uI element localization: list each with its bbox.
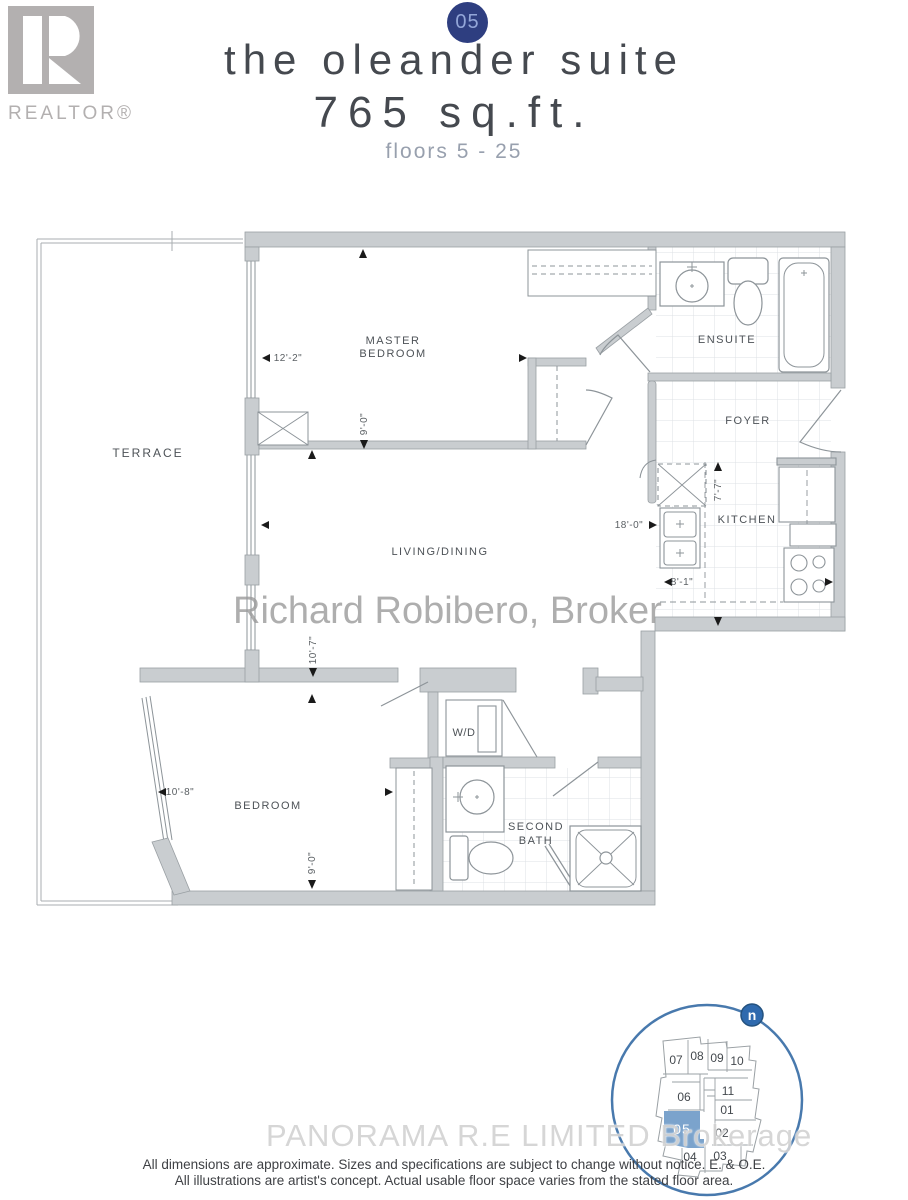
floorplan-page: REALTOR® 05 the oleander suite 765 sq.ft…	[0, 0, 908, 1200]
burner	[813, 580, 825, 592]
stove	[784, 548, 834, 602]
keyplan-unit-09: 09	[710, 1051, 724, 1065]
windows	[142, 261, 255, 842]
label-living: LIVING/DINING	[391, 546, 488, 558]
disclaimer-line-1: All dimensions are approximate. Sizes an…	[0, 1157, 908, 1173]
dim-bedroom-depth: 9'-0"	[307, 852, 318, 874]
keyplan-unit-10: 10	[730, 1054, 744, 1068]
brokerage-watermark: PANORAMA R.E LIMITED Brokerage	[266, 1118, 812, 1154]
bath-toilet-tank	[450, 836, 468, 880]
label-bath-2: BATH	[519, 835, 554, 847]
dim-master-depth: 9'-0"	[359, 413, 370, 435]
broker-watermark: Richard Robibero, Broker	[233, 590, 662, 633]
kitchen-counter	[790, 524, 836, 546]
kitchen-counter-edge	[777, 458, 836, 465]
dim-living-depth: 10'-7"	[308, 636, 319, 664]
label-foyer: FOYER	[725, 415, 770, 427]
bath-toilet-bowl	[469, 842, 513, 874]
shower-drain	[600, 852, 612, 864]
keyplan-unit-11: 11	[722, 1084, 735, 1098]
label-terrace: TERRACE	[112, 446, 183, 460]
dim-living-width: 18'-0"	[615, 520, 643, 531]
burner	[813, 556, 825, 568]
wd-door	[503, 700, 537, 757]
label-master-2: BEDROOM	[359, 348, 426, 360]
dim-bedroom-width: 10'-8"	[166, 787, 194, 798]
terrace-railing	[37, 231, 243, 905]
keyplan-unit-08: 08	[690, 1049, 704, 1063]
burner	[791, 555, 807, 571]
north-indicator-label: n	[748, 1007, 757, 1023]
label-bath-1: SECOND	[508, 821, 564, 833]
keyplan-unit-06: 06	[677, 1090, 691, 1104]
bedroom-door	[381, 682, 428, 706]
label-master-1: MASTER	[366, 335, 421, 347]
label-kitchen: KITCHEN	[718, 514, 777, 526]
disclaimer-line-2: All illustrations are artist's concept. …	[0, 1173, 908, 1189]
keyplan-unit-07: 07	[669, 1053, 683, 1067]
dim-master-width: 12'-2"	[274, 353, 302, 364]
dim-kitchen-width: 8'-1"	[671, 577, 693, 588]
label-ensuite: ENSUITE	[698, 334, 756, 346]
master-entry-closet	[528, 250, 656, 296]
burner	[791, 579, 807, 595]
disclaimer: All dimensions are approximate. Sizes an…	[0, 1157, 908, 1189]
dim-kitchen-depth: 7'-7"	[713, 479, 724, 501]
label-bedroom: BEDROOM	[234, 800, 301, 812]
label-wd: W/D	[453, 727, 476, 739]
walkin-closet-door	[586, 390, 612, 445]
keyplan-unit-01: 01	[720, 1103, 734, 1117]
ensuite-toilet-bowl	[734, 281, 762, 325]
ensuite-toilet-tank	[728, 258, 768, 284]
